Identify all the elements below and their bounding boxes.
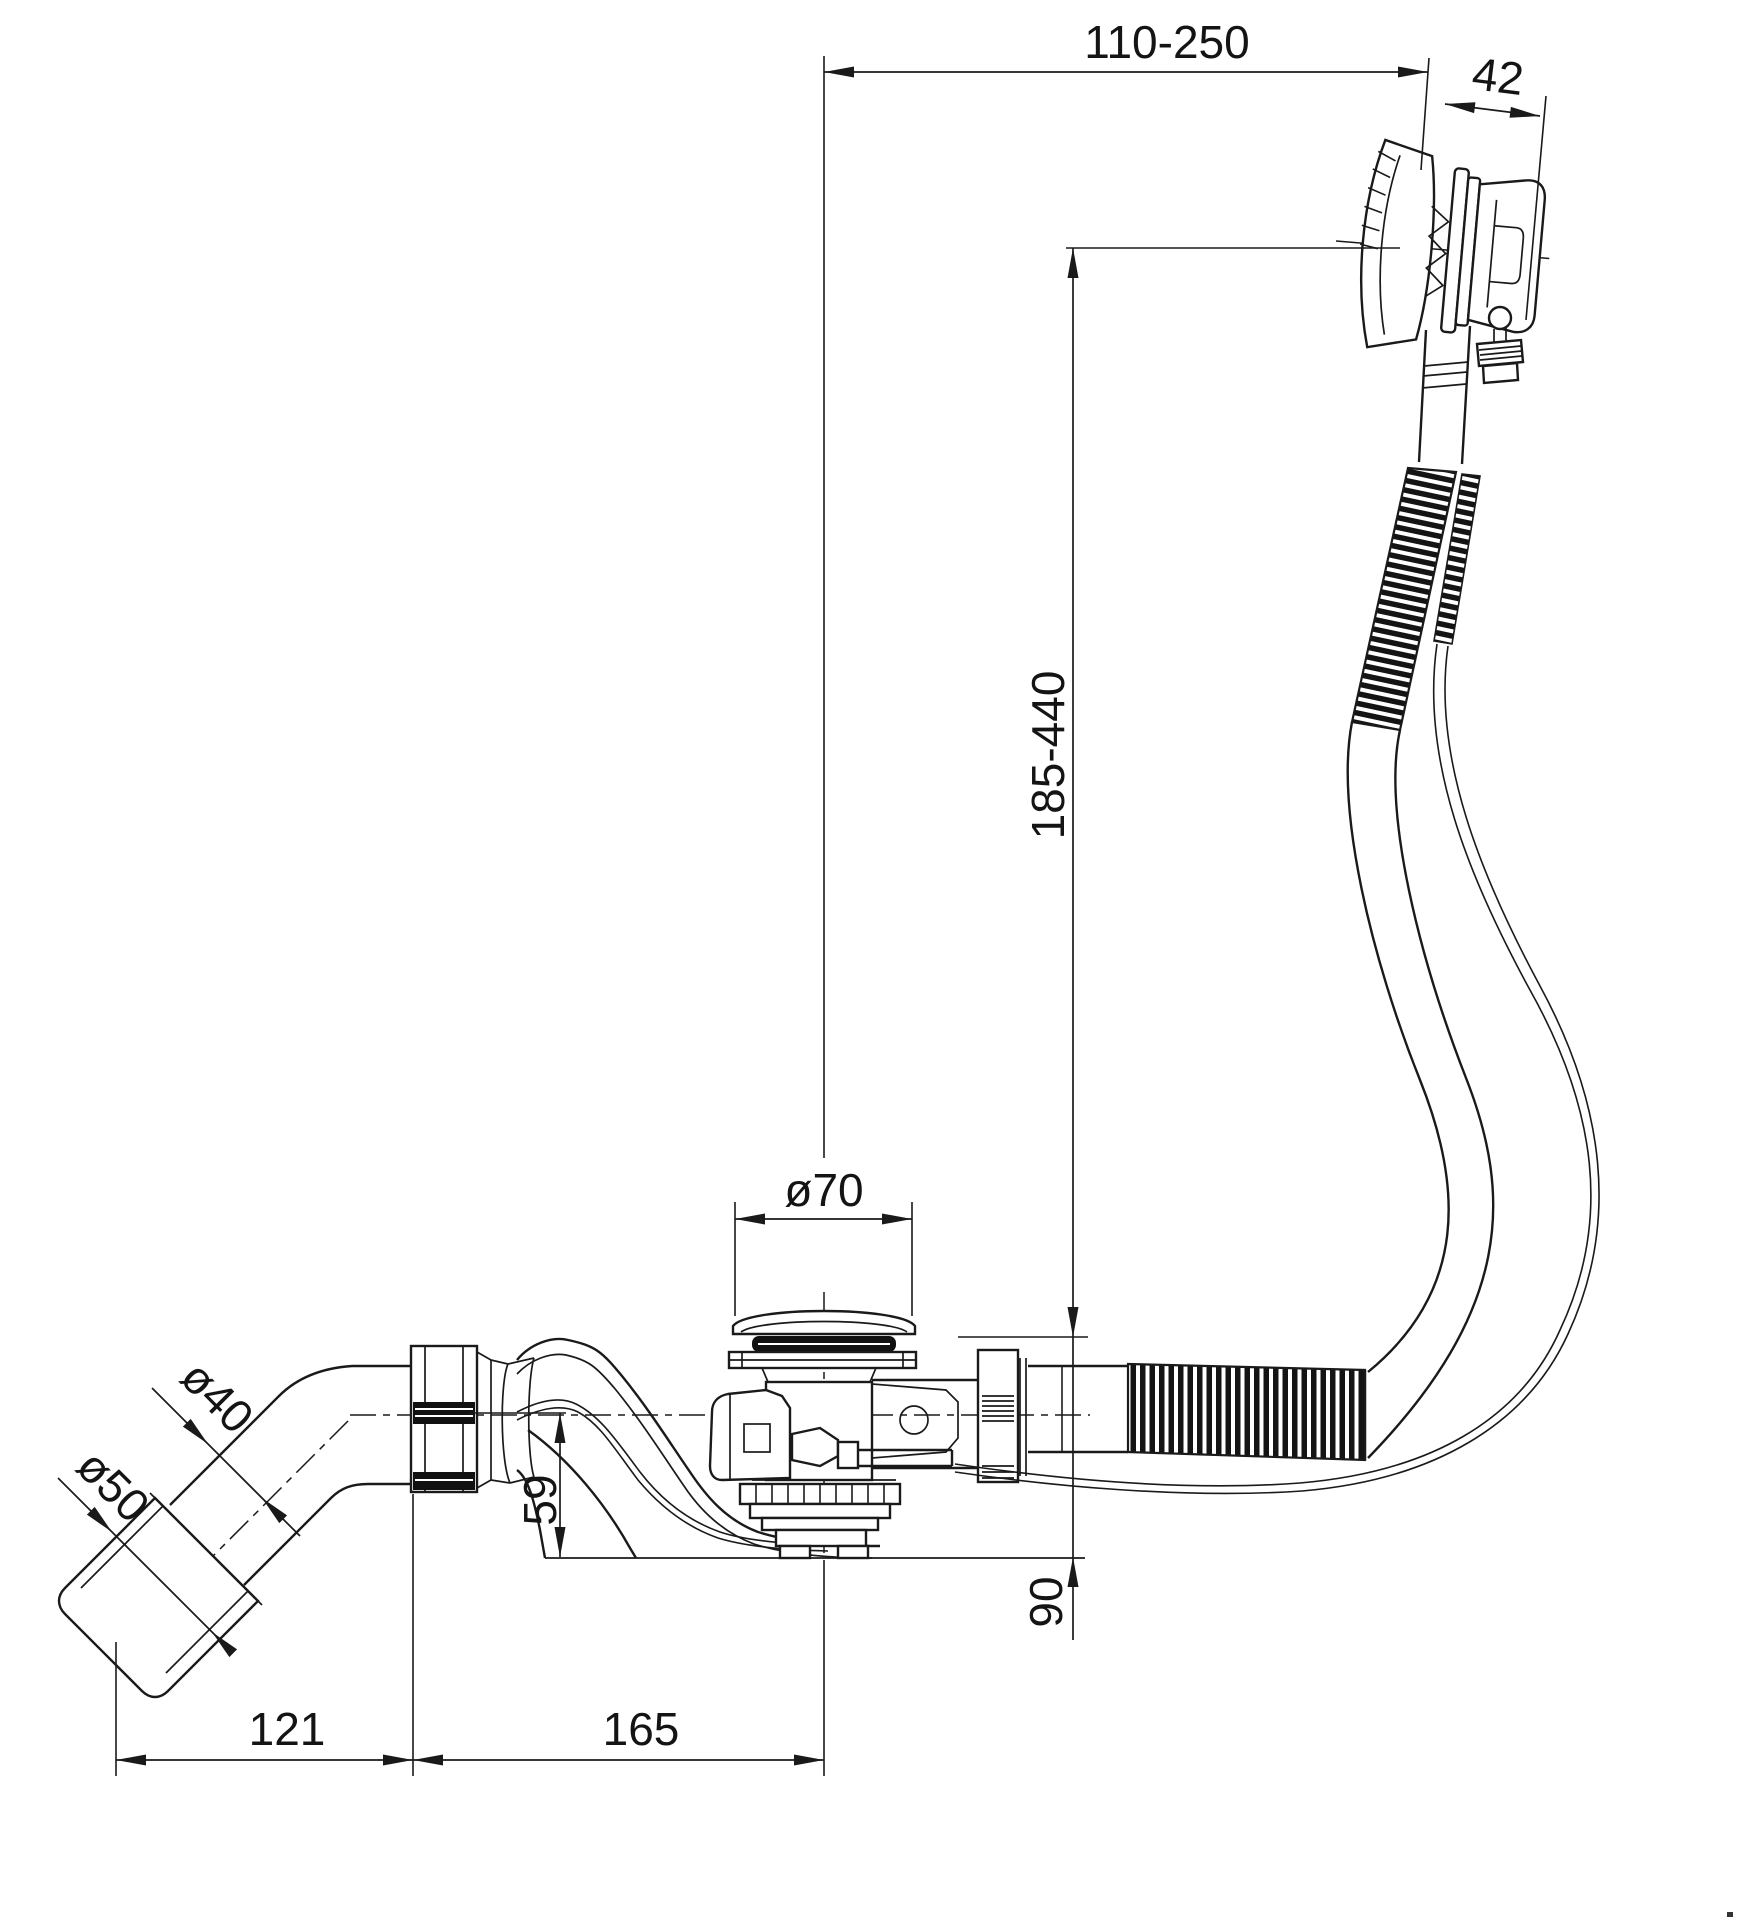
technical-drawing-canvas: 110-250 42 185-440 ø70 ø40 ø50 59 90 121… — [0, 0, 1738, 1920]
corrugated-hose — [1128, 1364, 1365, 1460]
dim-label-overflow-base-height: 90 — [1020, 1576, 1072, 1627]
popup-plug — [733, 1311, 915, 1352]
dim-label-plug-diameter: ø70 — [784, 1164, 863, 1216]
dim-label-waste-body-height: 59 — [514, 1474, 566, 1525]
dim-label-waste-to-overflow-offset: 165 — [603, 1703, 680, 1755]
seal-band — [413, 1402, 475, 1424]
dim-label-cable-run-height: 185-440 — [1022, 671, 1074, 840]
dim-label-horizontal-reach: 110-250 — [1084, 16, 1249, 68]
drawing-page: 110-250 42 185-440 ø70 ø40 ø50 59 90 121… — [0, 0, 1738, 1920]
dim-label-knob-depth: 42 — [1469, 47, 1526, 105]
ball-joint — [1489, 307, 1511, 329]
corner-artifact — [1727, 1912, 1733, 1917]
dim-label-elbow-offset: 121 — [249, 1703, 326, 1755]
cam-housing — [710, 1390, 790, 1480]
union-nut — [411, 1346, 477, 1492]
